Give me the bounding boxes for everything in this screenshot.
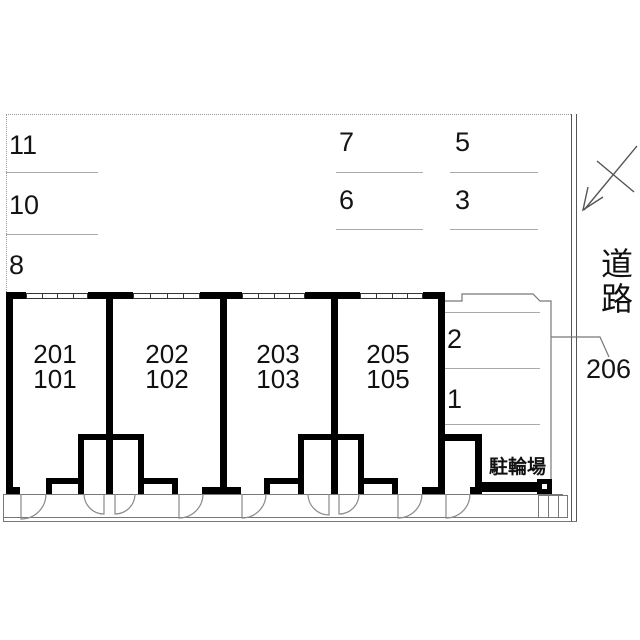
window-mullion [57, 293, 58, 299]
door-swing [179, 494, 203, 518]
parking-stall-10: 10 [9, 192, 39, 219]
parking-stall-1: 1 [447, 386, 462, 413]
north-arrow-icon [583, 146, 637, 210]
unit-lower: 101 [15, 367, 95, 392]
window-mullion [42, 293, 43, 299]
window-mullion [407, 293, 408, 299]
door-swing [446, 494, 470, 518]
window-mullion [376, 293, 377, 299]
unit-divider-wall [106, 292, 113, 494]
building-wall [438, 292, 445, 494]
entrance-step [264, 478, 298, 494]
window-mullion [392, 293, 393, 299]
door-swing [115, 494, 135, 514]
building-wall [6, 292, 26, 299]
door-swing [398, 494, 422, 518]
window-mullion [274, 293, 275, 299]
unit-label-201-101: 201 101 [15, 342, 95, 392]
wall-post [537, 479, 552, 494]
entrance-step [144, 478, 178, 494]
unit-label-205-105: 205 105 [348, 342, 428, 392]
window-mullion [183, 293, 184, 299]
plan-linework [0, 0, 640, 640]
building-wall [423, 292, 445, 299]
parking-stall-2: 2 [447, 326, 462, 353]
unit-label-203-103: 203 103 [238, 342, 318, 392]
bicycle-parking-label: 駐輪場 [489, 452, 546, 479]
door-swing [339, 494, 359, 514]
parking-stall-5: 5 [455, 129, 470, 156]
bike-area-wall [475, 482, 537, 492]
building-wall [305, 292, 360, 299]
unit-divider-wall [331, 292, 338, 494]
unit-label-202-102: 202 102 [127, 342, 207, 392]
building-wall [422, 487, 445, 494]
parking-stall-3: 3 [455, 187, 470, 214]
window-mullion [258, 293, 259, 299]
parking-stall-11: 11 [9, 132, 37, 159]
window-mullion [150, 293, 151, 299]
site-plan: 11 10 8 7 6 5 3 2 1 201 101 202 102 203 … [0, 0, 640, 640]
door-swing [21, 494, 46, 519]
door-swing [84, 494, 104, 514]
building-wall [6, 487, 20, 494]
entrance-step [364, 478, 398, 494]
door-swing [242, 494, 266, 518]
window-mullion [73, 293, 74, 299]
unit-lower: 105 [348, 367, 428, 392]
building-wall [200, 292, 242, 299]
road-label: 道路 [598, 247, 632, 317]
unit-lower: 103 [238, 367, 318, 392]
door-swing [308, 494, 329, 515]
unit-206-label: 206 [586, 356, 631, 383]
building-wall [88, 292, 133, 299]
unit-divider-wall [220, 292, 227, 494]
building-wall [6, 292, 13, 494]
building-wall [202, 487, 241, 494]
parking-stall-7: 7 [339, 129, 354, 156]
window-mullion [289, 293, 290, 299]
unit-lower: 102 [127, 367, 207, 392]
parking-stall-8: 8 [9, 252, 24, 279]
parking-stall-6: 6 [339, 187, 354, 214]
window-mullion [167, 293, 168, 299]
